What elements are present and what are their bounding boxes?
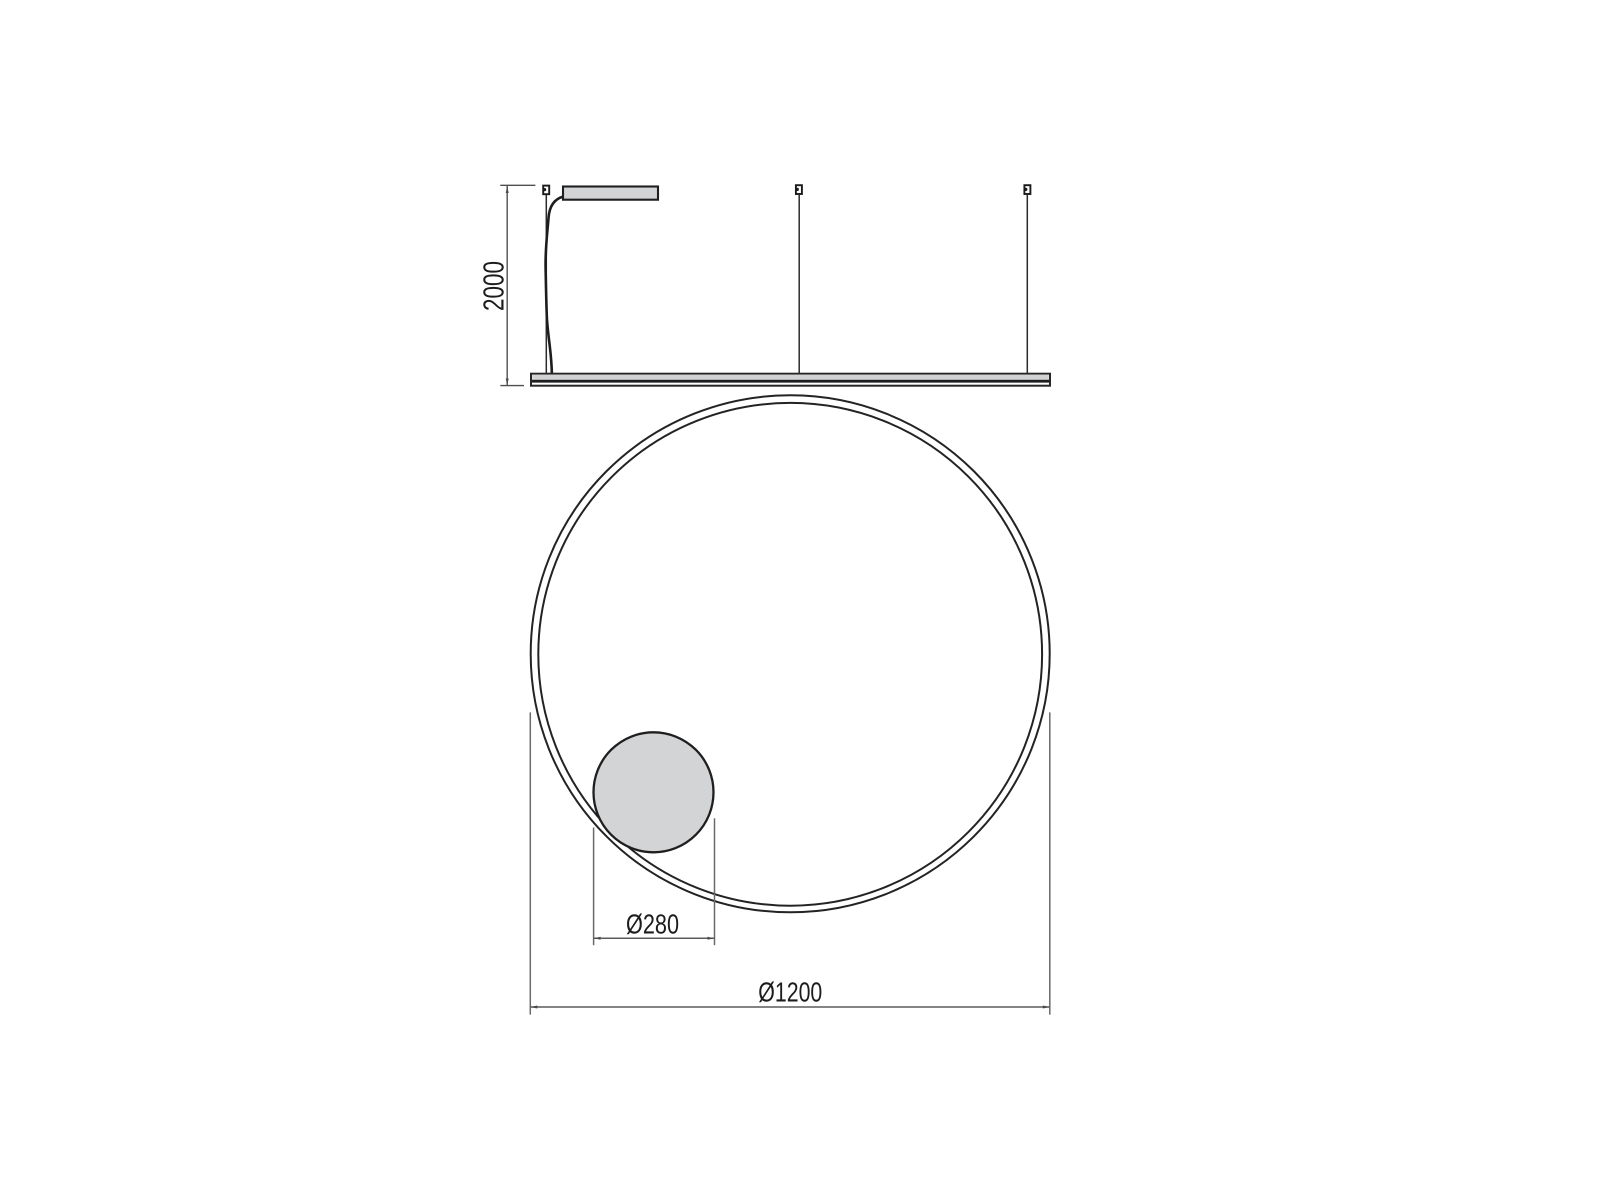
svg-text:2000: 2000 bbox=[479, 261, 511, 311]
svg-text:Ø1200: Ø1200 bbox=[758, 977, 822, 1008]
svg-text:Ø280: Ø280 bbox=[626, 909, 679, 940]
